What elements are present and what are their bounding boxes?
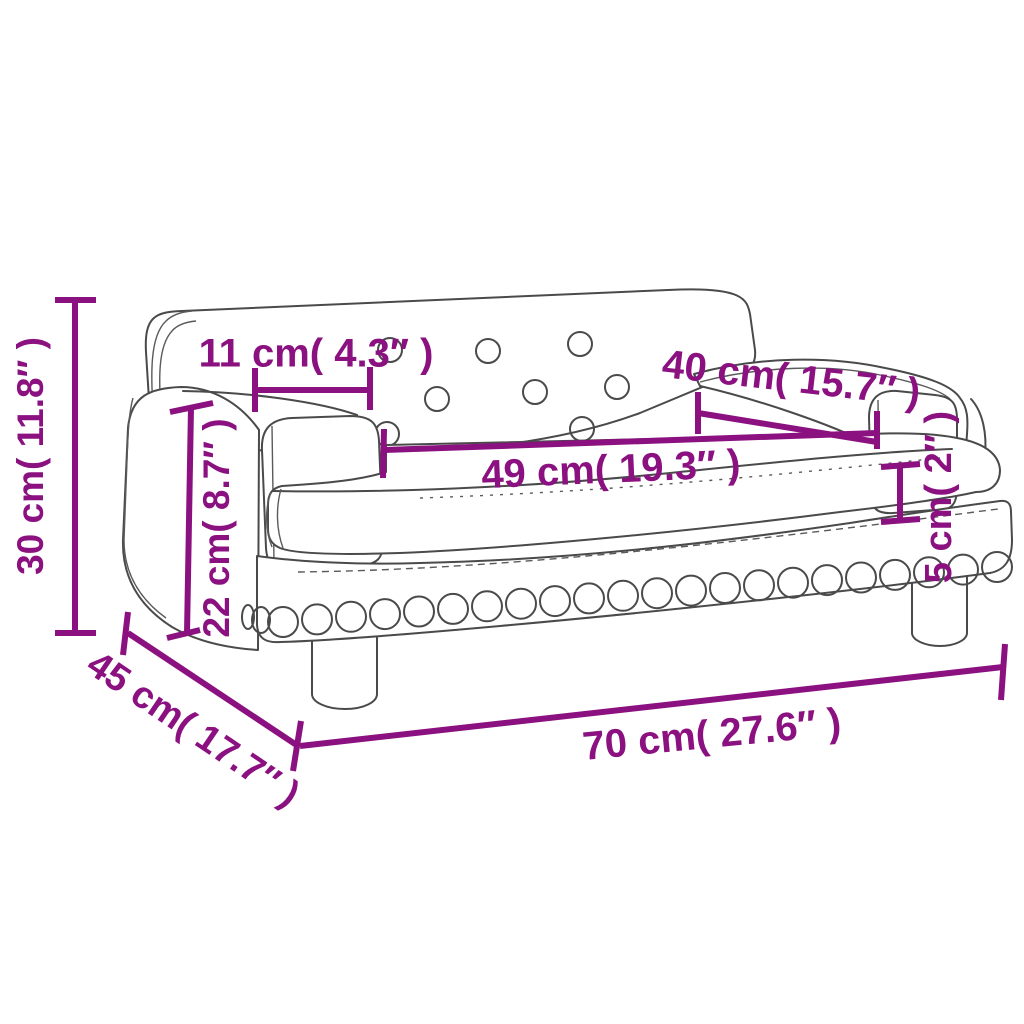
- dimension-overall-width: 70 cm( 27.6″ ): [293, 644, 1005, 771]
- dimension-tick: [293, 721, 301, 771]
- diagram-page: 30 cm( 11.8″ ) 11 cm( 4.3″ ) 40 cm( 15.7…: [0, 0, 1024, 1024]
- dimension-tick: [881, 464, 920, 467]
- dimension-label-seat-height: 22 cm( 8.7″ ): [196, 418, 237, 637]
- dimension-line: [187, 407, 191, 634]
- dimension-label-cushion-thickness: 5 cm( 2″ ): [918, 411, 960, 583]
- dimension-tick: [1001, 644, 1005, 700]
- dimension-label-armrest-top-width: 11 cm( 4.3″ ): [199, 332, 434, 376]
- dimension-tick: [383, 429, 384, 478]
- dimension-label-overall-height: 30 cm( 11.8″ ): [10, 337, 51, 575]
- dimension-tick: [881, 519, 920, 522]
- dimension-overall-height: 30 cm( 11.8″ ): [10, 300, 96, 633]
- dimension-tick: [123, 612, 128, 655]
- sofa-dimension-diagram: 30 cm( 11.8″ ) 11 cm( 4.3″ ) 40 cm( 15.7…: [0, 0, 1024, 1024]
